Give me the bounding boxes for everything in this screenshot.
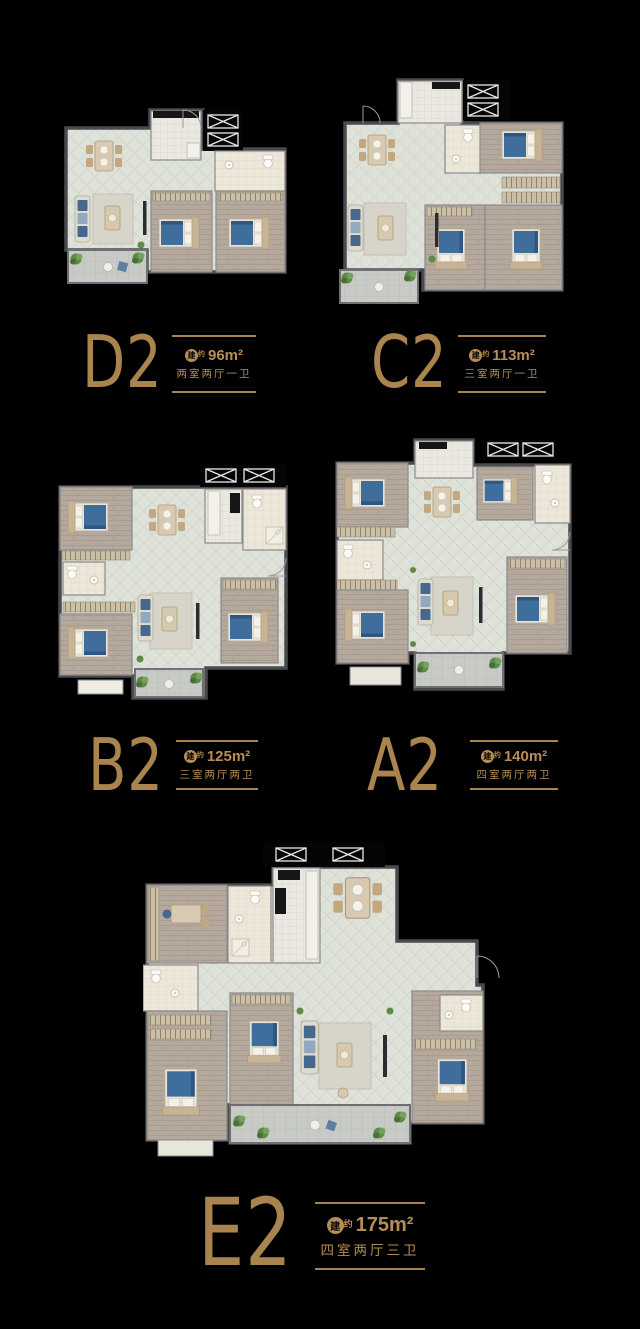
b2-bedroom-3 [221,578,278,663]
unit-code-a2: A2 [367,732,443,800]
a2-step [350,667,401,685]
a2-bedroom-3 [337,590,408,663]
a2-bathroom-2 [337,540,383,580]
b2-elevators [200,465,286,487]
d2-bedroom-1 [151,191,212,272]
unit-rooms-b2: 三室两厅两卫 [180,767,255,782]
d2-bathroom [215,151,285,191]
b2-bedroom-2 [60,614,132,675]
unit-info-c2: 建约 113m² 三室两厅一卫 [458,335,546,393]
a2-bathroom-1 [535,465,570,523]
e2-bathroom-1 [228,886,271,963]
e2-entry-door [477,956,499,978]
c2-bedroom-3 [485,205,562,290]
b2-step [78,680,123,694]
floorplan-c2 [334,77,576,306]
e2-bathroom-3 [440,995,483,1031]
e2-bedroom-2 [230,993,293,1105]
b2-balcony [135,669,203,697]
c2-kitchen [398,81,462,123]
e2-kitchen [273,868,320,963]
area-icon: 建约 [469,349,489,362]
a2-bedroom-2 [477,467,533,520]
unit-code-c2: C2 [371,329,448,397]
unit-code-b2: B2 [88,732,164,800]
unit-area-e2: 175m² [356,1214,414,1237]
floorplan-a2 [333,437,588,695]
e2-study [147,885,227,963]
unit-code-e2: E2 [198,1190,293,1278]
unit-area-a2: 140m² [504,748,547,765]
b2-closet [63,602,135,612]
unit-info-d2: 建约 96m² 两室两厅一卫 [172,335,256,393]
e2-step [158,1140,213,1156]
unit-rooms-c2: 三室两厅一卫 [465,366,540,381]
b2-bedroom-1 [60,487,132,560]
e2-balcony [230,1105,410,1143]
unit-info-e2: 建约 175m² 四室两厅三卫 [315,1202,425,1270]
a2-balcony [415,653,503,687]
d2-elevators [203,110,243,151]
b2-bathroom-2 [63,562,105,595]
c2-bedroom-2 [425,205,485,290]
area-icon: 建约 [327,1217,353,1234]
unit-code-d2: D2 [82,329,163,397]
unit-info-b2: 建约 125m² 三室两厅两卫 [176,740,258,790]
unit-area-c2: 113m² [492,347,535,364]
c2-bedroom-1 [480,123,562,173]
c2-entry-door [363,106,380,123]
area-icon: 建约 [481,750,501,763]
c2-elevators [463,80,509,120]
b2-bathroom-1 [243,489,286,550]
unit-rooms-e2: 四室两厅三卫 [321,1239,420,1259]
a2-kitchen [415,441,473,478]
floorplan-poster: D2 建约 96m² 两室两厅一卫 C2 建约 113m² 三室两厅一卫 B2 … [0,0,640,1329]
a2-bedroom-4 [507,557,567,653]
e2-bathroom-2 [143,965,198,1011]
e2-bedroom-1 [147,1011,227,1140]
unit-area-b2: 125m² [207,748,250,765]
a2-closet [337,580,397,590]
d2-bedroom-2 [216,191,285,272]
floorplan-d2 [63,97,298,302]
floorplan-e2 [143,843,508,1175]
unit-rooms-d2: 两室两厅一卫 [177,366,252,381]
a2-bedroom-1 [337,463,408,537]
e2-elevators [263,843,385,867]
unit-info-a2: 建约 140m² 四室两厅两卫 [470,740,558,790]
floorplan-b2 [48,463,302,706]
area-icon: 建约 [184,750,204,763]
unit-rooms-a2: 四室两厅两卫 [477,767,552,782]
b2-kitchen [205,489,242,543]
area-icon: 建约 [185,349,205,362]
unit-area-d2: 96m² [208,347,243,364]
a2-elevators [483,440,557,460]
